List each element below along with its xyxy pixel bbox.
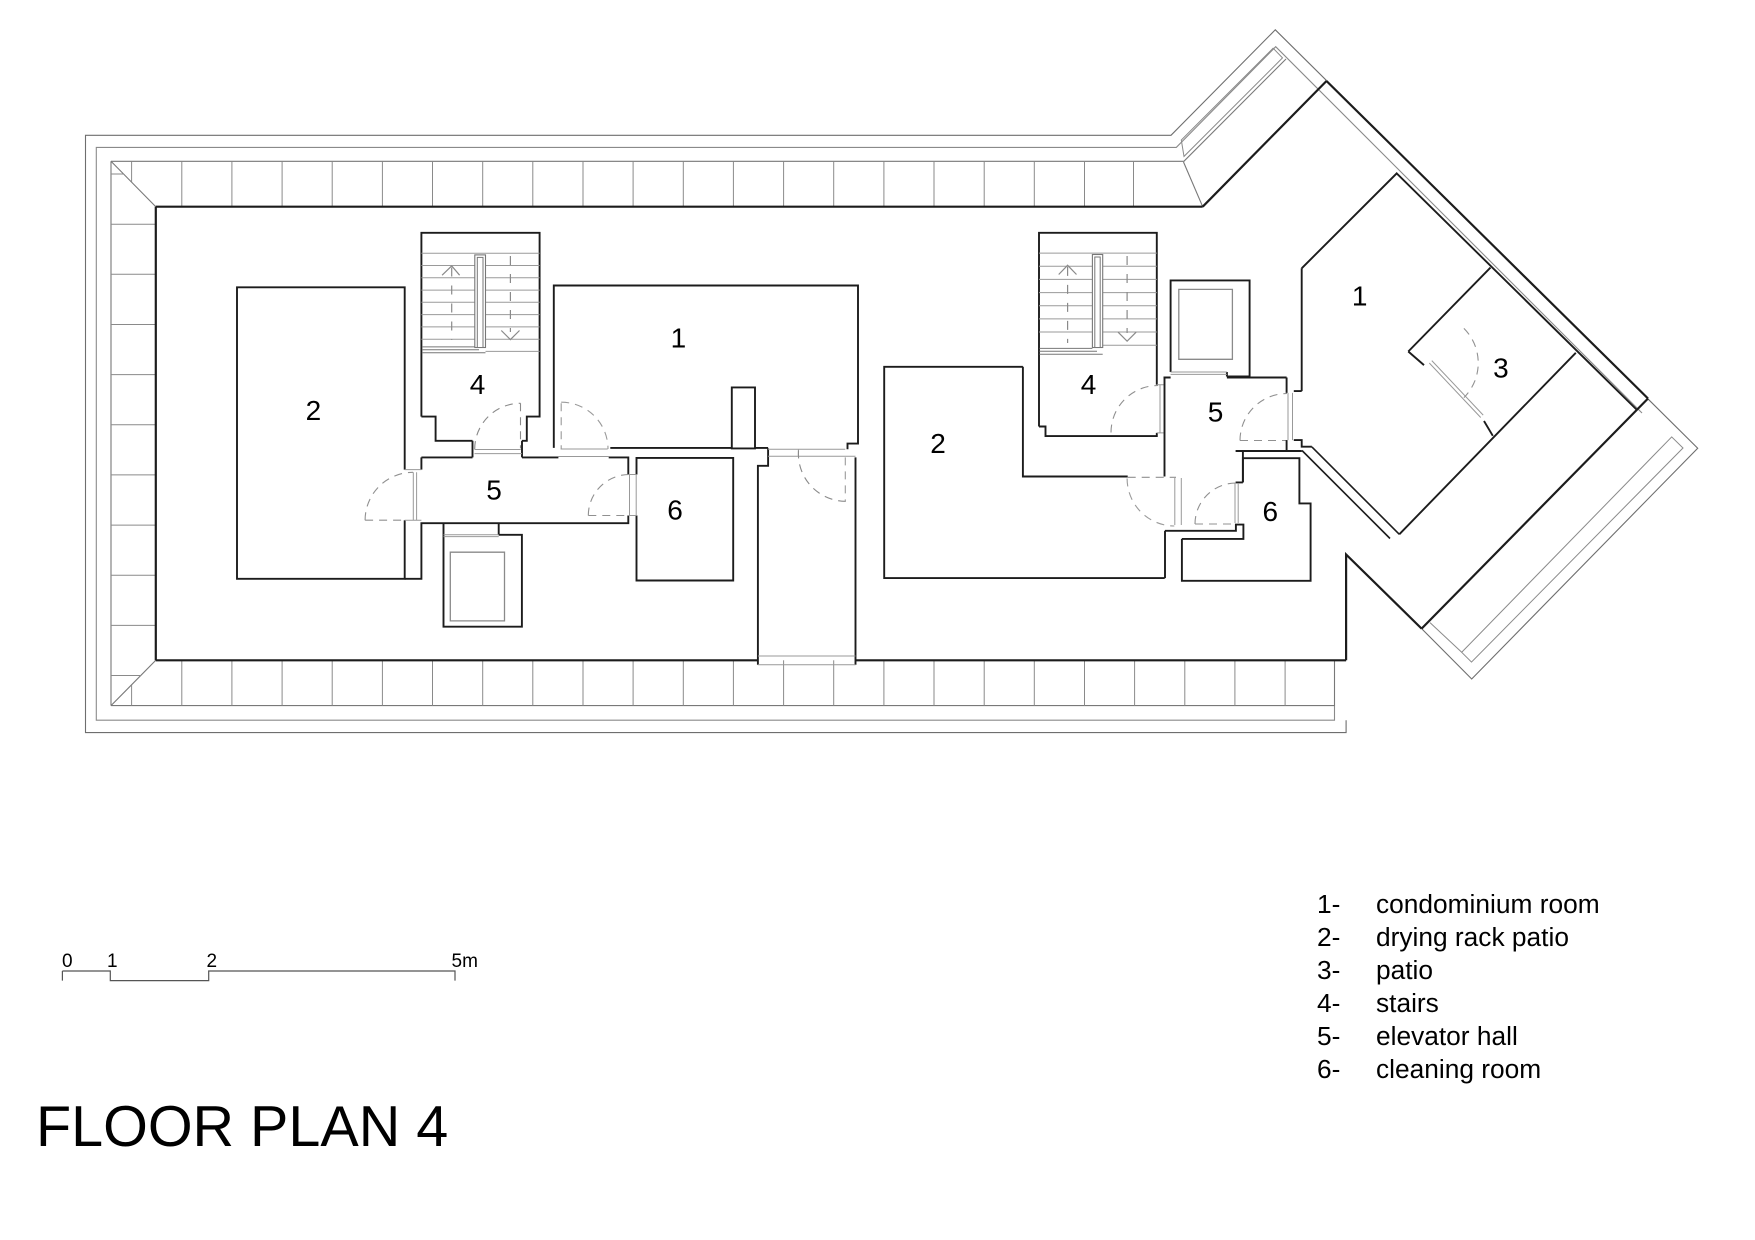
svg-text:5: 5 bbox=[486, 474, 502, 505]
svg-text:1-: 1- bbox=[1317, 889, 1340, 919]
svg-text:FLOOR PLAN 4: FLOOR PLAN 4 bbox=[36, 1095, 448, 1159]
svg-text:drying rack patio: drying rack patio bbox=[1376, 922, 1569, 952]
svg-text:5m: 5m bbox=[452, 951, 478, 972]
svg-text:stairs: stairs bbox=[1376, 988, 1439, 1018]
svg-text:0: 0 bbox=[62, 951, 73, 972]
svg-text:2-: 2- bbox=[1317, 922, 1340, 952]
svg-text:3-: 3- bbox=[1317, 955, 1340, 985]
svg-text:3: 3 bbox=[1493, 353, 1509, 384]
svg-text:2: 2 bbox=[930, 428, 946, 459]
svg-text:6: 6 bbox=[667, 494, 683, 525]
svg-text:4-: 4- bbox=[1317, 988, 1340, 1018]
svg-text:1: 1 bbox=[1352, 281, 1368, 312]
svg-text:2: 2 bbox=[306, 395, 322, 426]
svg-text:6: 6 bbox=[1263, 496, 1279, 527]
svg-text:5: 5 bbox=[1208, 397, 1224, 428]
svg-text:2: 2 bbox=[207, 951, 218, 972]
svg-text:6-: 6- bbox=[1317, 1054, 1340, 1084]
svg-text:5-: 5- bbox=[1317, 1021, 1340, 1051]
svg-text:condominium room: condominium room bbox=[1376, 889, 1600, 919]
svg-text:elevator hall: elevator hall bbox=[1376, 1021, 1518, 1051]
svg-text:4: 4 bbox=[470, 369, 486, 400]
svg-text:1: 1 bbox=[107, 951, 118, 972]
svg-text:cleaning room: cleaning room bbox=[1376, 1054, 1541, 1084]
svg-text:patio: patio bbox=[1376, 955, 1433, 985]
svg-text:1: 1 bbox=[671, 322, 687, 353]
svg-text:4: 4 bbox=[1081, 369, 1097, 400]
